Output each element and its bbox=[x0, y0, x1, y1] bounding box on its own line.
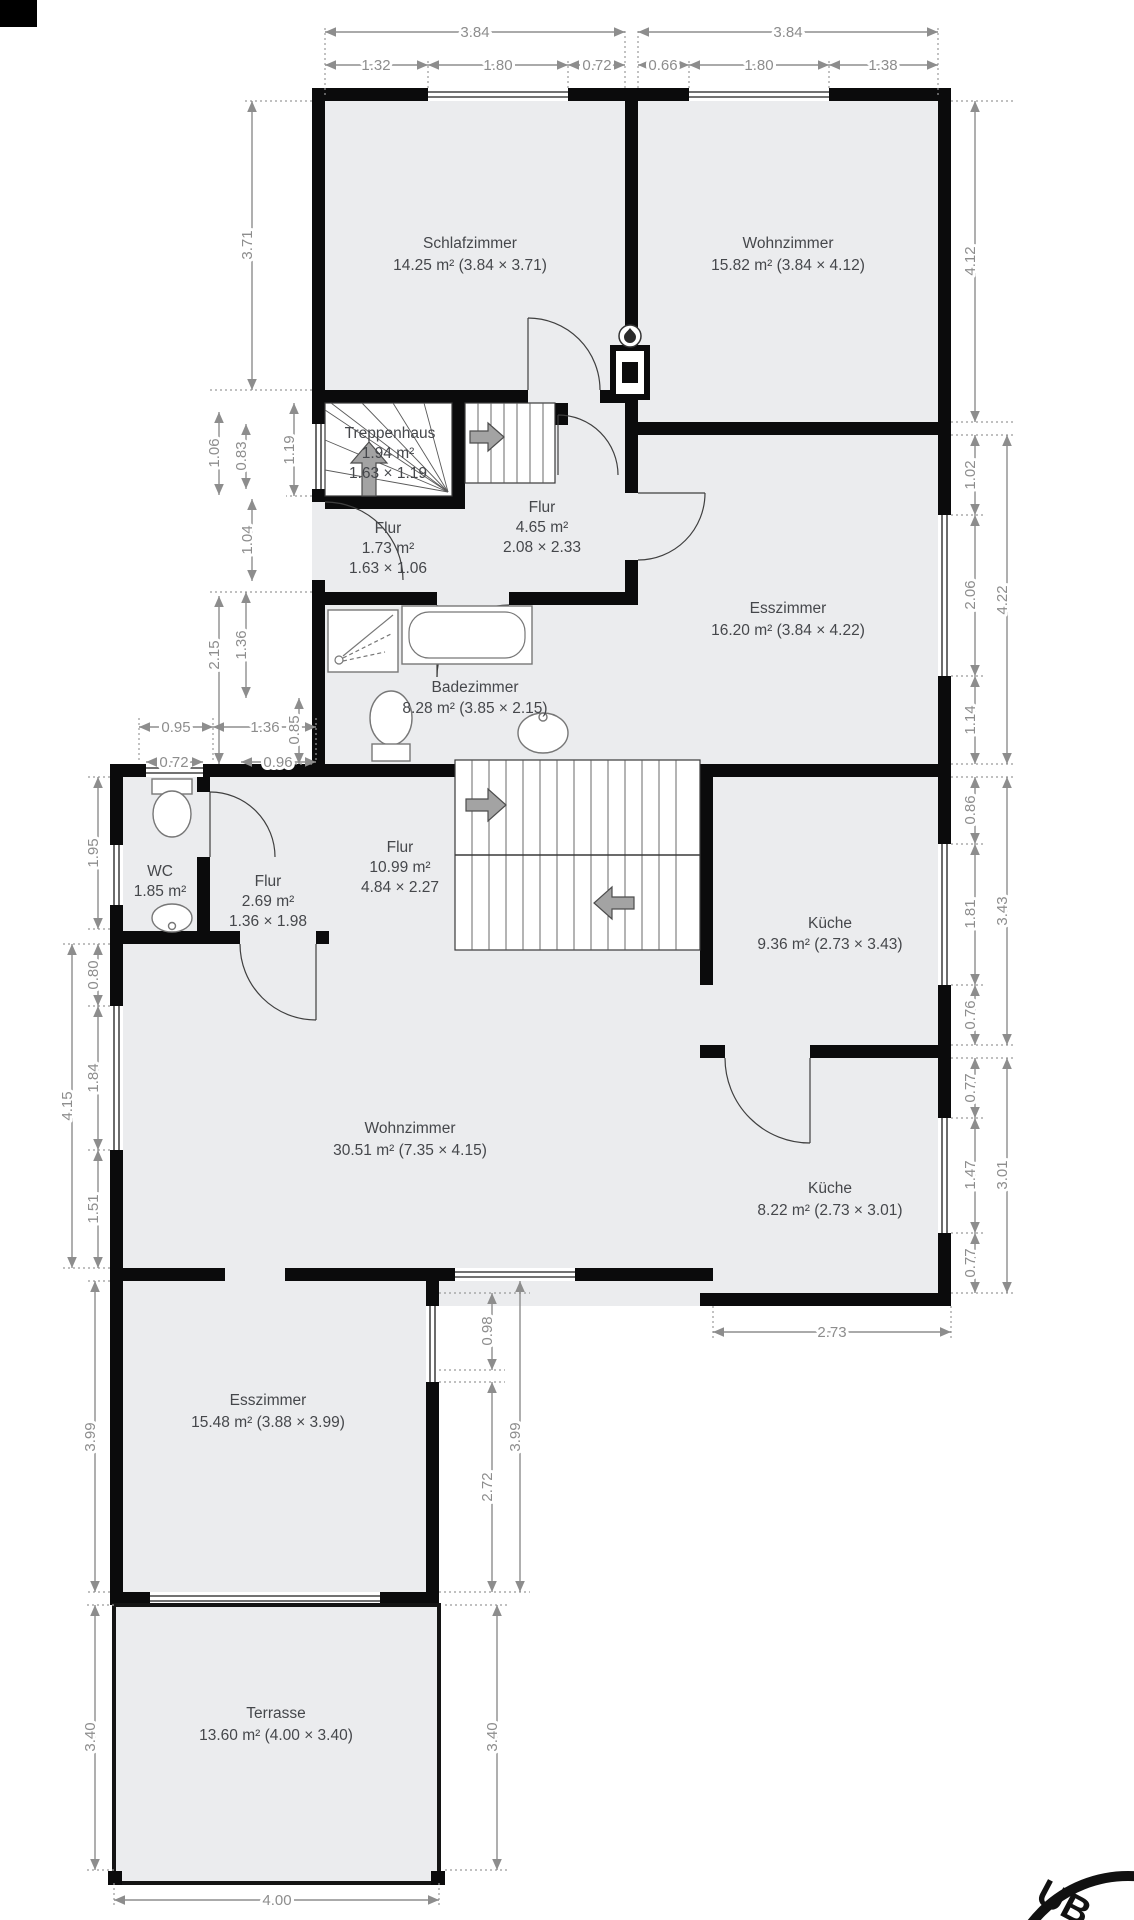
dim-label: 0.85 bbox=[286, 715, 303, 744]
dim-label: 1.04 bbox=[239, 525, 256, 554]
room-area: 1.73 m² bbox=[362, 540, 415, 557]
dim-label: 3.01 bbox=[994, 1160, 1011, 1189]
room-size: 1.63 × 1.06 bbox=[349, 560, 427, 577]
dim-label: 2.72 bbox=[479, 1472, 496, 1501]
dim-label: 1.47 bbox=[962, 1160, 979, 1189]
dim-label: 3.99 bbox=[507, 1422, 524, 1451]
dim-label: 4.00 bbox=[262, 1892, 291, 1909]
room-label-kueche-og: Küche bbox=[808, 915, 852, 932]
room-area: 1.94 m² bbox=[362, 445, 415, 462]
dim-label: 0.72 bbox=[159, 754, 188, 771]
dim-label: 0.80 bbox=[85, 960, 102, 989]
room-label-treppenhaus: Treppenhaus bbox=[345, 425, 436, 442]
dim-label: 3.71 bbox=[239, 230, 256, 259]
dim-label: 3.84 bbox=[460, 24, 489, 41]
dim-label: 1.06 bbox=[206, 438, 223, 467]
room-area: 2.69 m² bbox=[242, 893, 295, 910]
room-label-flur-klein: Flur bbox=[375, 520, 402, 537]
corner-artifact bbox=[0, 0, 37, 27]
dim-label: 2.15 bbox=[206, 640, 223, 669]
dim-label: 0.96 bbox=[263, 754, 292, 771]
room-label-flur-og: Flur bbox=[529, 499, 556, 516]
dim-label: 1.14 bbox=[962, 705, 979, 734]
room-area: 4.65 m² bbox=[516, 519, 569, 536]
dim-label: 0.95 bbox=[161, 719, 190, 736]
dim-label: 0.77 bbox=[962, 1073, 979, 1102]
floor-plan-drawing: 3.84 3.84 1.32 1.80 0.72 0.66 1.80 1.38 … bbox=[0, 0, 1134, 1920]
room-area: 15.48 m² (3.88 × 3.99) bbox=[191, 1414, 345, 1431]
dim-label: 0.86 bbox=[962, 795, 979, 824]
room-label-flur-eg: Flur bbox=[387, 839, 414, 856]
staircase-upper-small bbox=[465, 403, 555, 483]
dim-label: 2.06 bbox=[962, 580, 979, 609]
room-label-schlafzimmer: Schlafzimmer bbox=[423, 235, 517, 252]
dim-label: 1.19 bbox=[281, 435, 298, 464]
room-label-wc: WC bbox=[147, 863, 173, 880]
dim-label: 3.40 bbox=[484, 1722, 501, 1751]
dim-label: 3.43 bbox=[994, 896, 1011, 925]
dim-label: 1.51 bbox=[85, 1194, 102, 1223]
watermark-stamp: UB bbox=[1006, 1872, 1134, 1920]
room-area: 8.22 m² (2.73 × 3.01) bbox=[757, 1202, 902, 1219]
dim-label: 3.40 bbox=[82, 1722, 99, 1751]
dim-label: 0.76 bbox=[962, 1000, 979, 1029]
room-area: 8.28 m² (3.85 × 2.15) bbox=[402, 700, 547, 717]
room-label-esszimmer-og: Esszimmer bbox=[750, 600, 827, 617]
bathtub-icon bbox=[402, 606, 532, 664]
room-label-esszimmer-eg: Esszimmer bbox=[230, 1392, 307, 1409]
dim-label: 1.02 bbox=[962, 460, 979, 489]
dim-label: 0.77 bbox=[962, 1248, 979, 1277]
dim-label: 0.72 bbox=[582, 57, 611, 74]
room-label-kueche-eg: Küche bbox=[808, 1180, 852, 1197]
room-label-badezimmer: Badezimmer bbox=[432, 679, 519, 696]
dim-label: 3.84 bbox=[773, 24, 802, 41]
dim-label: 1.38 bbox=[868, 57, 897, 74]
dim-label: 1.36 bbox=[250, 719, 279, 736]
dim-label: 2.73 bbox=[817, 1324, 846, 1341]
dim-label: 0.66 bbox=[648, 57, 677, 74]
dim-label: 1.80 bbox=[744, 57, 773, 74]
room-label-terrasse: Terrasse bbox=[246, 1705, 305, 1722]
dim-label: 0.83 bbox=[233, 441, 250, 470]
room-area: 9.36 m² (2.73 × 3.43) bbox=[757, 936, 902, 953]
dim-label: 1.80 bbox=[483, 57, 512, 74]
room-size: 4.84 × 2.27 bbox=[361, 879, 439, 896]
dim-label: 4.15 bbox=[59, 1091, 76, 1120]
dim-label: 1.84 bbox=[85, 1063, 102, 1092]
room-area: 16.20 m² (3.84 × 4.22) bbox=[711, 622, 865, 639]
dim-label: 1.81 bbox=[962, 899, 979, 928]
room-label-wohnzimmer-eg: Wohnzimmer bbox=[364, 1120, 455, 1137]
room-label-flur-eg-klein: Flur bbox=[255, 873, 282, 890]
staircase-main bbox=[455, 760, 700, 950]
room-size: 1.36 × 1.98 bbox=[229, 913, 307, 930]
dim-label: 4.12 bbox=[962, 246, 979, 275]
room-area: 30.51 m² (7.35 × 4.15) bbox=[333, 1142, 487, 1159]
dim-label: 0.98 bbox=[479, 1316, 496, 1345]
floor-plan-page: 3.84 3.84 1.32 1.80 0.72 0.66 1.80 1.38 … bbox=[0, 0, 1134, 1920]
room-area: 14.25 m² (3.84 × 3.71) bbox=[393, 257, 547, 274]
room-size: 2.08 × 2.33 bbox=[503, 539, 581, 556]
dim-label: 1.95 bbox=[85, 838, 102, 867]
room-area: 10.99 m² bbox=[369, 859, 430, 876]
dim-label: 1.32 bbox=[361, 57, 390, 74]
room-area: 15.82 m² (3.84 × 4.12) bbox=[711, 257, 865, 274]
dim-label: 3.99 bbox=[82, 1422, 99, 1451]
room-label-wohnzimmer-og: Wohnzimmer bbox=[742, 235, 833, 252]
dim-label: 1.36 bbox=[233, 630, 250, 659]
room-floors bbox=[110, 88, 951, 1883]
room-area: 1.85 m² bbox=[134, 883, 187, 900]
dim-label: 4.22 bbox=[994, 585, 1011, 614]
room-area: 13.60 m² (4.00 × 3.40) bbox=[199, 1727, 353, 1744]
room-size: 1.63 × 1.19 bbox=[349, 465, 427, 482]
